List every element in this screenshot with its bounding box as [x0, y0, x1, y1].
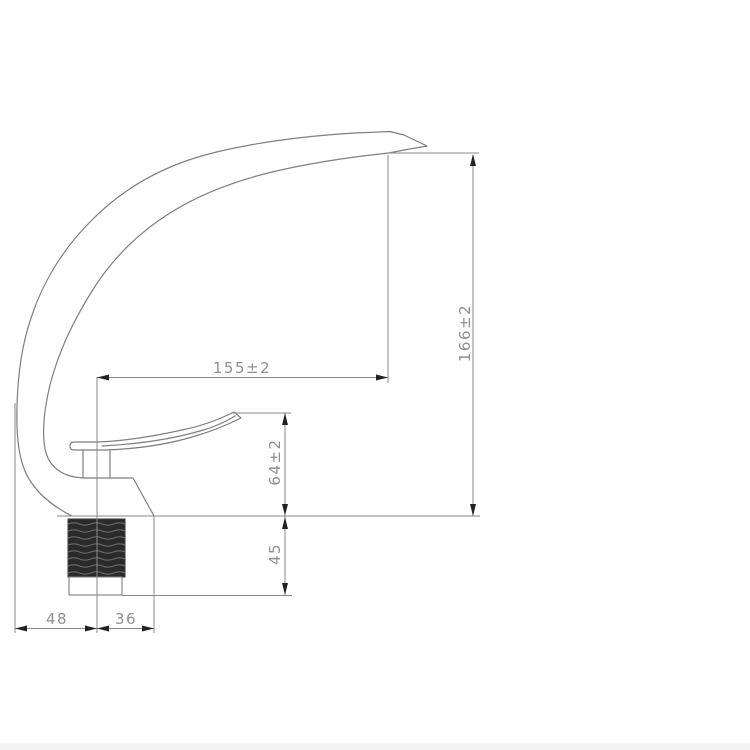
dim-label-spout-reach: 155±2: [213, 359, 271, 377]
shank-collar: [69, 577, 122, 595]
arrowhead-left: [15, 626, 27, 632]
page-bottom-strip: [0, 743, 750, 750]
handle-lever: [70, 412, 241, 450]
arrowhead-top: [470, 154, 476, 166]
dimension-base-widths: 48 36: [15, 610, 154, 632]
arrowhead-top: [282, 517, 288, 529]
spout-curve: [17, 132, 427, 517]
dim-label-overall-height: 166±2: [456, 304, 474, 362]
arrowhead-right: [376, 375, 388, 381]
dimension-body-height: 64±2: [266, 413, 288, 516]
arrowhead-bottom: [282, 504, 288, 516]
dimension-shank-length: 45: [266, 516, 288, 595]
arrowhead-bottom: [470, 504, 476, 516]
dimension-spout-reach: 155±2: [97, 359, 388, 381]
arrowhead-bottom: [282, 583, 288, 595]
arrowhead-center-from-left: [85, 626, 97, 632]
arrowhead-right: [142, 626, 154, 632]
dim-label-base-front-width: 36: [115, 610, 137, 628]
technical-drawing-canvas: 155±2 166±2 64±2 45: [0, 0, 750, 750]
dim-label-base-rear-width: 48: [46, 610, 68, 628]
arrowhead-left: [97, 375, 109, 381]
dim-label-shank-length: 45: [266, 543, 284, 565]
dim-label-body-height: 64±2: [266, 438, 284, 485]
faucet-dimension-diagram: 155±2 166±2 64±2 45: [0, 0, 750, 750]
arrowhead-center-from-right: [97, 626, 109, 632]
dimension-overall-height: 166±2: [456, 154, 476, 516]
arrowhead-top: [282, 413, 288, 425]
